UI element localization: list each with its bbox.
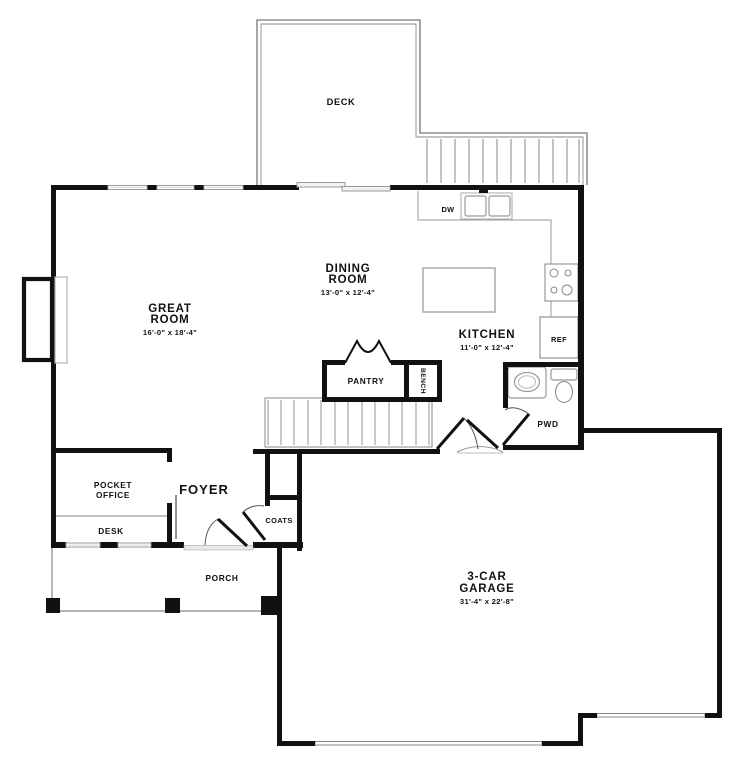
garage-dims: 31'-4" x 22'-8" [460,597,514,606]
walls [51,185,722,746]
powder-label: PWD [537,419,558,429]
great-room-label-2: ROOM [151,314,190,326]
great-room-dims: 16'-0" x 18'-4" [143,328,197,337]
labels: DECK GREAT ROOM 16'-0" x 18'-4" DINING R… [94,97,567,606]
floor-plan-svg: DECK GREAT ROOM 16'-0" x 18'-4" DINING R… [0,0,747,768]
pantry-label: PANTRY [348,376,385,386]
sliding-door-panel-2 [342,187,390,192]
garage-label-1: 3-CAR [467,571,506,583]
powder-door-leaf [503,414,529,445]
front-door-arc [205,519,218,545]
bench-label: BENCH [419,368,426,394]
dishwasher-label: DW [441,205,454,214]
kitchen-label: KITCHEN [459,329,516,341]
desk-label: DESK [98,526,123,536]
garage-door-single [597,714,705,718]
pocket-office-label-1: POCKET [94,480,132,490]
porch-post-right [261,596,282,615]
coats-door-arc [243,506,264,512]
refrigerator-label: REF [551,335,567,344]
garage-door-wide [315,742,542,746]
dining-room-dims: 13'-0" x 12'-4" [321,288,375,297]
hall-door-leaf [437,418,464,449]
kitchen-dims: 11'-0" x 12'-4" [460,343,514,352]
deck-outline [257,20,587,185]
porch-post-middle [165,598,180,613]
dining-room-label-2: ROOM [329,274,368,286]
powder-door-arc [505,408,529,414]
sliding-door-panel-1 [297,183,345,188]
toilet [551,369,577,403]
foyer-label: FOYER [179,482,229,497]
garage-entry-door-leaf [467,420,498,448]
porch-label: PORCH [206,573,239,583]
kitchen-sink [461,193,512,219]
front-door-leaf [218,519,247,546]
fireplace [24,277,67,363]
kitchen-island [423,268,495,312]
pantry-doors [345,341,391,363]
porch-post-left [46,598,60,613]
stove [545,264,578,301]
deck-railing-slats [427,139,579,183]
garage-label-2: GARAGE [459,583,514,595]
pocket-office-label-2: OFFICE [96,490,130,500]
deck-label: DECK [327,97,356,107]
powder-vanity-sink [508,367,546,398]
floor-plan-page: DECK GREAT ROOM 16'-0" x 18'-4" DINING R… [0,0,747,768]
front-door-threshold [184,546,253,551]
staircase [265,398,432,447]
coats-door-leaf [243,512,265,540]
coats-label: COATS [265,516,292,525]
